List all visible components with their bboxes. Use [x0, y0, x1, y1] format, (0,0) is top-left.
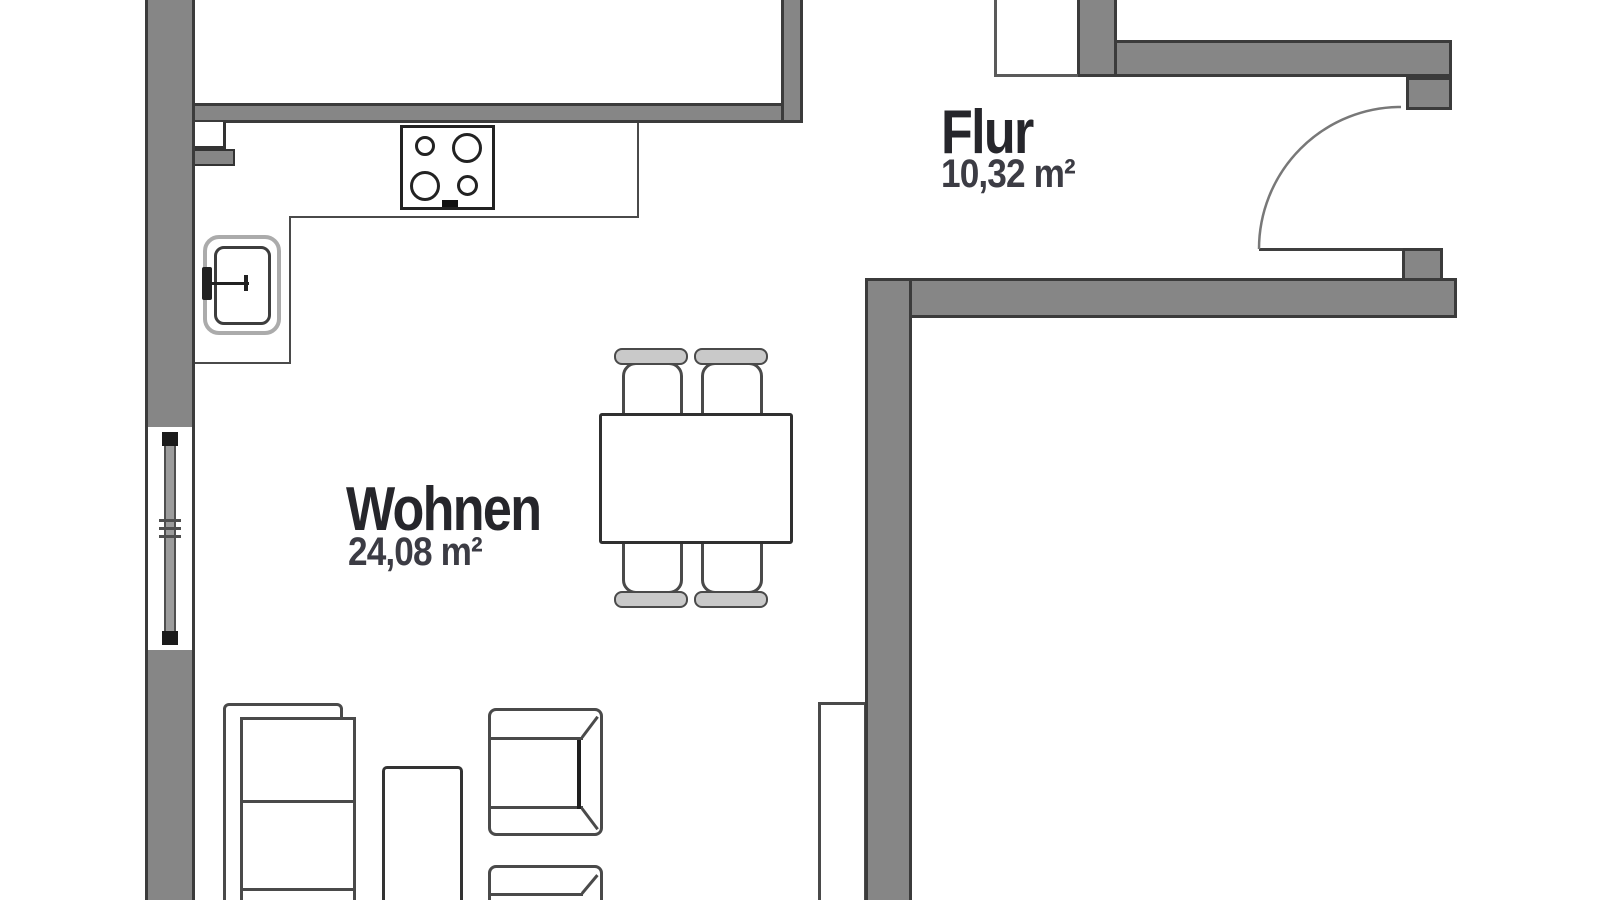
window-glass-line: [164, 435, 176, 642]
counter-edge-front: [290, 216, 639, 218]
chair-seat: [622, 540, 683, 594]
stove-control-mark: [442, 200, 458, 207]
armchair-corner-mark: [581, 874, 599, 894]
kitchen-pier: [192, 122, 226, 149]
wall-top-center: [145, 103, 803, 123]
stove-icon: [400, 125, 495, 210]
door-leaf: [1259, 248, 1403, 251]
armchair-corner-mark: [581, 716, 599, 739]
burner-bottom-right: [457, 175, 478, 196]
chair-seat: [701, 540, 763, 594]
wall-top-right-vertical: [1077, 0, 1117, 74]
room-area-flur: 10,32 m²: [941, 154, 1075, 194]
faucet-icon: [202, 267, 212, 300]
counter-edge-left-column: [289, 216, 291, 364]
window: [145, 427, 195, 650]
wall-flur-bottom: [865, 278, 1457, 318]
armchair-partial: [488, 865, 603, 900]
burner-top-right: [452, 133, 482, 163]
armchair-armrest-line: [491, 806, 583, 809]
sofa: [240, 717, 356, 900]
kitchen-pier-base: [188, 149, 235, 166]
counter-edge-bottom: [195, 362, 291, 364]
sink-basin: [214, 246, 271, 325]
chair-backrest: [614, 591, 688, 608]
floor-plan: Flur 10,32 m² Wohnen 24,08 m²: [0, 0, 1600, 900]
window-frame-tick: [162, 631, 178, 645]
dining-table: [599, 413, 793, 544]
burner-bottom-left: [410, 171, 440, 201]
coffee-table: [382, 766, 463, 900]
burner-top-left: [415, 136, 435, 156]
window-sash-mark: [159, 527, 181, 530]
sofa-cushion-divider: [243, 800, 353, 803]
room-area-wohnen: 24,08 m²: [348, 532, 482, 572]
window-sash-mark: [159, 519, 181, 522]
counter-edge-right: [637, 123, 639, 218]
faucet-handle: [244, 275, 248, 291]
door-jamb-top: [1406, 77, 1452, 110]
door-jamb-bottom: [1402, 248, 1443, 281]
passage-opening-side-line: [994, 0, 997, 77]
chair-backrest: [694, 591, 768, 608]
window-frame-tick: [162, 432, 178, 446]
wall-central-vertical: [865, 278, 912, 900]
passage-opening-bottom-line: [994, 74, 1078, 77]
armchair-armrest-line: [491, 893, 583, 896]
chair-backrest: [614, 348, 688, 365]
sideboard: [818, 702, 867, 900]
armchair-backrest-line: [577, 740, 581, 809]
chair-seat: [701, 362, 763, 416]
armchair-armrest-line: [491, 737, 583, 740]
armchair-corner-mark: [581, 808, 599, 831]
sofa-cushion-divider: [243, 888, 353, 891]
wall-top-right-band: [1077, 40, 1452, 77]
chair-backrest: [694, 348, 768, 365]
window-sash-mark: [159, 535, 181, 538]
chair-seat: [622, 362, 683, 416]
wall-top-center-column: [781, 0, 803, 120]
armchair: [488, 708, 603, 836]
